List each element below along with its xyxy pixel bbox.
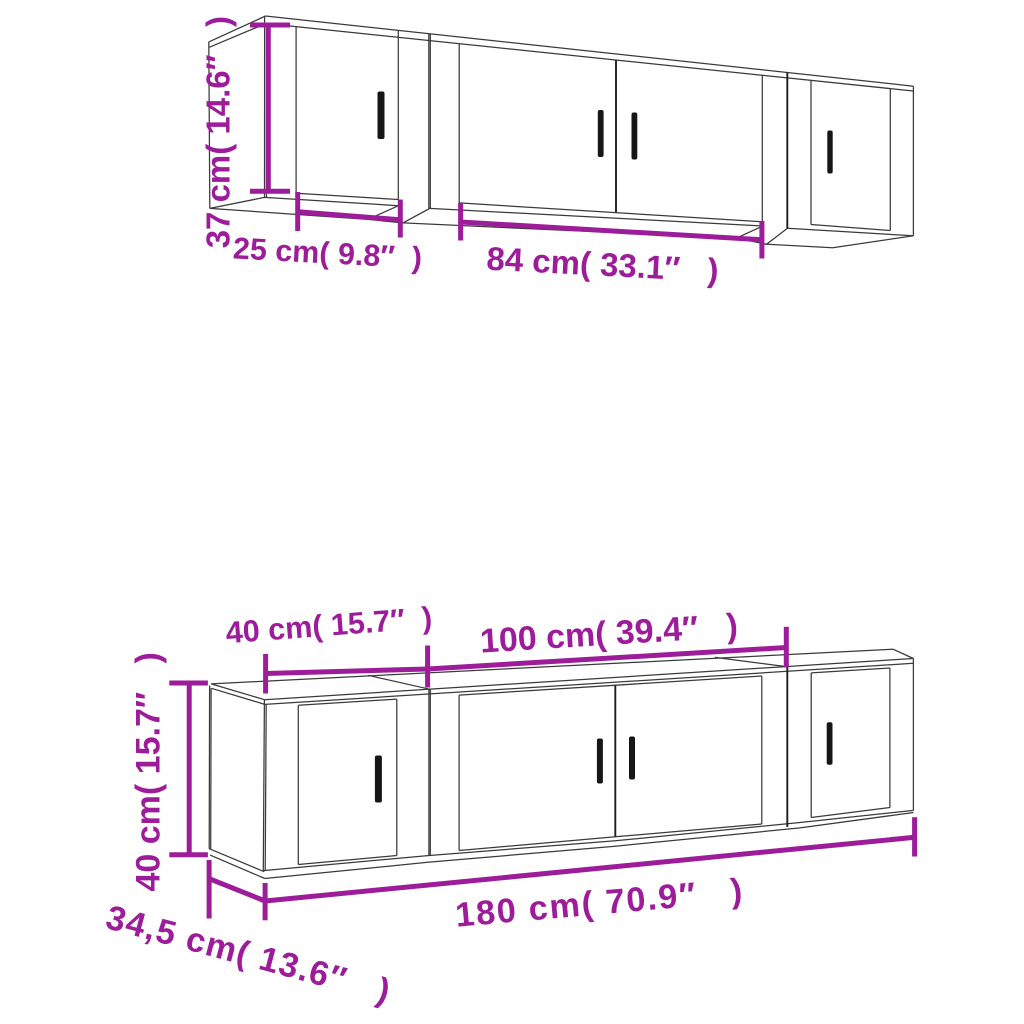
svg-text:40 cm( 15.7″ ): 40 cm( 15.7″ ) <box>130 652 168 891</box>
svg-text:37 cm( 14.6″ ): 37 cm( 14.6″ ) <box>200 16 237 248</box>
